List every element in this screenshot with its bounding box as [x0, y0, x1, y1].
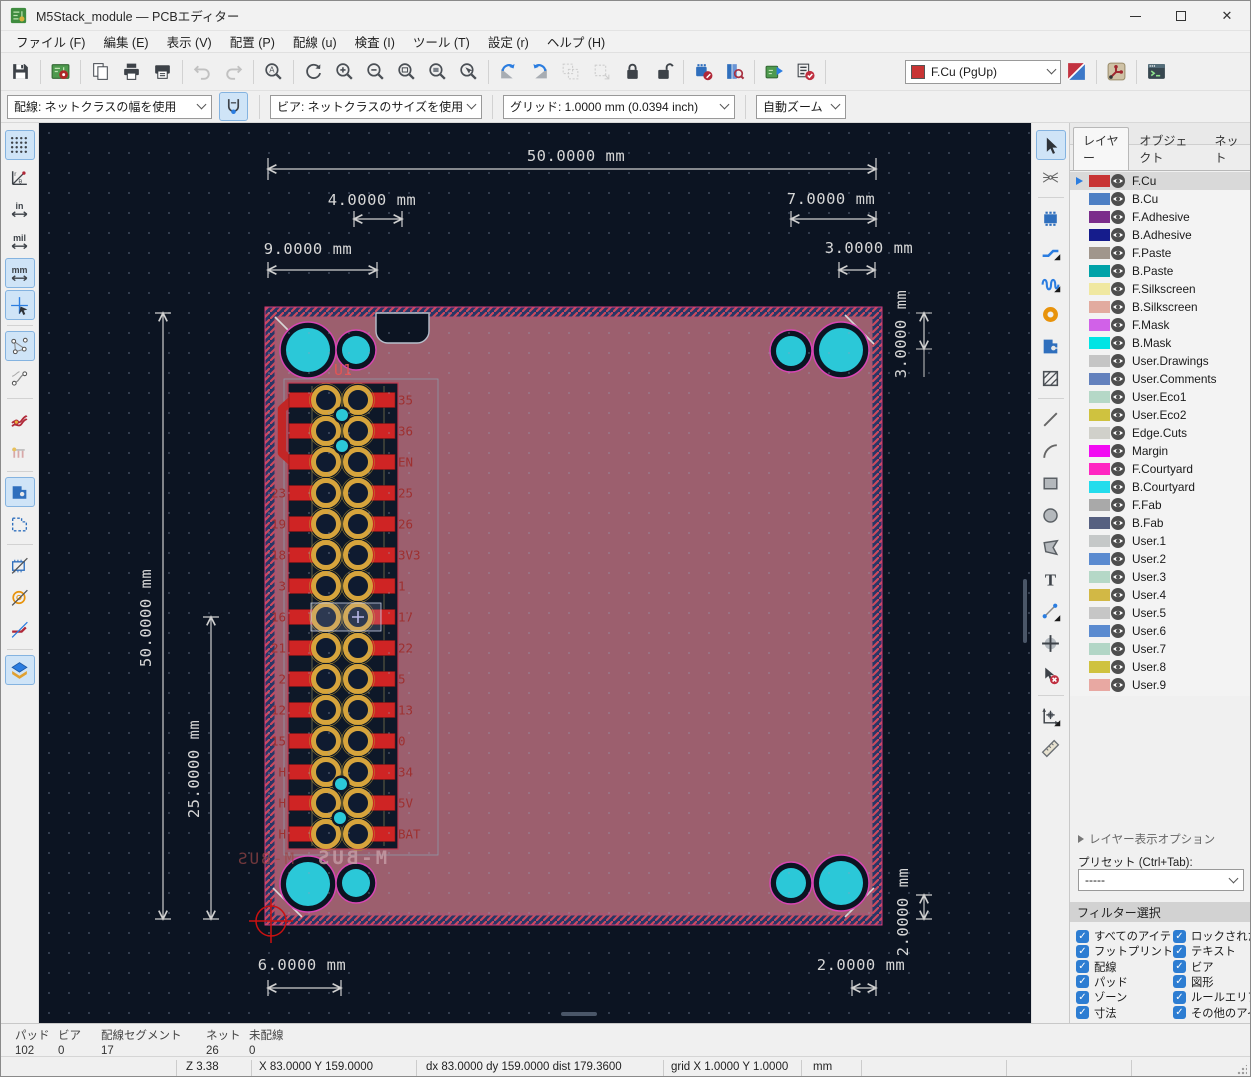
svg-text:θ: θ: [18, 178, 22, 185]
window-title: M5Stack_module — PCBエディター: [36, 6, 239, 25]
layer-row-f-adhesive[interactable]: F.Adhesive: [1070, 208, 1251, 226]
layer-color-swatch[interactable]: [1089, 337, 1110, 349]
router-settings-button[interactable]: [1102, 57, 1131, 86]
app-icon: [10, 7, 27, 24]
zone-fill-display-button[interactable]: [5, 477, 35, 507]
visibility-eye-icon[interactable]: [1110, 677, 1126, 693]
zoom-fit-button[interactable]: [392, 57, 421, 86]
place-via-button[interactable]: [1036, 299, 1066, 329]
params-toolbar: 配線: ネットクラスの幅を使用 ビア: ネットクラスのサイズを使用 グリッド: …: [1, 91, 1250, 123]
save-icon: [10, 61, 31, 82]
layer-row-f-fab[interactable]: F.Fab: [1070, 496, 1251, 514]
draw-zone-icon: [1040, 336, 1061, 357]
add-text-button[interactable]: T: [1036, 564, 1066, 594]
undo-button[interactable]: [188, 57, 217, 86]
status-units: mm: [813, 1061, 832, 1073]
units-mil-button[interactable]: mil: [5, 226, 35, 256]
separator: [182, 60, 183, 84]
layer-color-swatch[interactable]: [1089, 283, 1110, 295]
route-tracks-button[interactable]: [1036, 235, 1066, 265]
layer-row-f-courtyard[interactable]: F.Courtyard: [1070, 460, 1251, 478]
rotate-ccw-icon: [498, 61, 519, 82]
filter-item: ✓ビア: [1173, 960, 1251, 974]
svg-text:3.0000 mm: 3.0000 mm: [892, 290, 910, 379]
dimension-icon: [1040, 601, 1061, 622]
pcb-editor-window: M5Stack_module — PCBエディター ✕ ファイル (F)編集 (…: [0, 0, 1251, 1077]
rule-area-icon: [1040, 368, 1061, 389]
scripting-console-button[interactable]: [1142, 57, 1171, 86]
visibility-eye-icon[interactable]: [1110, 425, 1126, 441]
visibility-eye-icon[interactable]: [1110, 659, 1126, 675]
filter-checkbox[interactable]: ✓: [1076, 960, 1089, 973]
layer-color-swatch[interactable]: [1089, 679, 1110, 691]
update-pcb-from-schematic-icon: [764, 61, 785, 82]
group-items-button[interactable]: [556, 57, 585, 86]
count-1: ビア0: [58, 1027, 81, 1057]
visibility-eye-icon[interactable]: [1110, 173, 1126, 189]
layer-color-swatch[interactable]: [1089, 211, 1110, 223]
sketch-pads-button[interactable]: [5, 582, 35, 612]
status-position: X 83.0000 Y 159.0000: [259, 1061, 373, 1073]
lock-button[interactable]: [618, 57, 647, 86]
menu-item-1[interactable]: 編集 (E): [94, 30, 157, 53]
filter-label: ルールエリア: [1191, 990, 1251, 1004]
visibility-eye-icon[interactable]: [1110, 245, 1126, 261]
chevron-down-icon: [467, 100, 477, 110]
visibility-eye-icon[interactable]: [1110, 407, 1126, 423]
layer-row-b-courtyard[interactable]: B.Courtyard: [1070, 478, 1251, 496]
group-items-icon: [560, 61, 581, 82]
menubar: ファイル (F)編集 (E)表示 (V)配置 (P)配線 (u)検査 (I)ツー…: [1, 31, 1250, 53]
delete-tool-button[interactable]: [1036, 660, 1066, 690]
count-2: 配線セグメント17: [101, 1027, 182, 1057]
separator: [40, 60, 41, 84]
layer-row-user-9[interactable]: User.9: [1070, 676, 1251, 694]
sketch-tracks-button[interactable]: [5, 614, 35, 644]
filter-checkbox[interactable]: ✓: [1076, 1006, 1089, 1019]
tab-objects[interactable]: オブジェクト: [1129, 127, 1204, 170]
minimize-icon: [1130, 16, 1141, 17]
status-counts-bar: パッド102ビア0配線セグメント17ネット26未配線0: [1, 1023, 1250, 1056]
layer-row-f-mask[interactable]: F.Mask: [1070, 316, 1251, 334]
layer-name: B.Adhesive: [1132, 228, 1192, 242]
filter-checkbox[interactable]: ✓: [1173, 975, 1186, 988]
layer-color-swatch[interactable]: [1089, 229, 1110, 241]
layer-name: B.Silkscreen: [1132, 300, 1198, 314]
layer-row-f-silkscreen[interactable]: F.Silkscreen: [1070, 280, 1251, 298]
update-pcb-from-schematic-button[interactable]: [760, 57, 789, 86]
pcb-canvas[interactable]: U1 3536EN23251926183V3311617212225121315…: [39, 123, 1031, 1023]
filter-checkbox[interactable]: ✓: [1173, 945, 1186, 958]
crosshair-cursor-button[interactable]: [5, 290, 35, 320]
print-button[interactable]: [117, 57, 146, 86]
visibility-eye-icon[interactable]: [1110, 551, 1126, 567]
unlock-button[interactable]: [649, 57, 678, 86]
separator: [825, 60, 826, 84]
visibility-eye-icon[interactable]: [1110, 641, 1126, 657]
filter-checkbox[interactable]: ✓: [1076, 930, 1089, 943]
units-inch-icon: in: [9, 199, 30, 220]
layer-color-swatch[interactable]: [1089, 661, 1110, 673]
ungroup-items-button[interactable]: [587, 57, 616, 86]
filter-item: ✓ルールエリア: [1173, 990, 1251, 1004]
layer-row-edge-cuts[interactable]: Edge.Cuts: [1070, 424, 1251, 442]
menu-item-7[interactable]: 設定 (r): [479, 30, 538, 53]
layer-name: User.7: [1132, 642, 1166, 656]
footprint-browser-button[interactable]: [720, 57, 749, 86]
footprint-browser-icon: [724, 61, 745, 82]
zoom-fit-objects-icon: [427, 61, 448, 82]
filter-item: ✓その他のアイテム: [1173, 1006, 1251, 1020]
menu-item-8[interactable]: ヘルプ (H): [538, 30, 614, 53]
tab-layers[interactable]: レイヤー: [1073, 127, 1129, 170]
draw-circle-button[interactable]: [1036, 500, 1066, 530]
layer-color-swatch[interactable]: [1089, 481, 1110, 493]
filter-checkbox[interactable]: ✓: [1076, 991, 1089, 1004]
filter-item: ✓図形: [1173, 975, 1251, 989]
show-ratsnest-button[interactable]: [5, 331, 35, 361]
layer-row-user-4[interactable]: User.4: [1070, 586, 1251, 604]
visibility-eye-icon[interactable]: [1110, 533, 1126, 549]
find-button[interactable]: A: [259, 57, 288, 86]
menu-item-2[interactable]: 表示 (V): [158, 30, 221, 53]
place-via-icon: [1040, 304, 1061, 325]
net-names-display-button[interactable]: [5, 436, 35, 466]
layer-color-swatch[interactable]: [1089, 373, 1110, 385]
target-marker-icon: [1040, 633, 1061, 654]
separator: [259, 95, 260, 119]
filter-checkbox[interactable]: ✓: [1076, 975, 1089, 988]
layer-row-b-fab[interactable]: B.Fab: [1070, 514, 1251, 532]
filter-label: フットプリント: [1094, 944, 1171, 958]
layer-row-margin[interactable]: Margin: [1070, 442, 1251, 460]
visibility-eye-icon[interactable]: [1110, 605, 1126, 621]
layer-list: F.CuB.CuF.AdhesiveB.AdhesiveF.PasteB.Pas…: [1070, 172, 1251, 696]
redo-button[interactable]: [219, 57, 248, 86]
lock-icon: [622, 61, 643, 82]
zone-outline-display-button[interactable]: [5, 509, 35, 539]
vertical-scrollbar[interactable]: [1023, 579, 1027, 643]
layer-row-f-paste[interactable]: F.Paste: [1070, 244, 1251, 262]
layer-row-user-eco2[interactable]: User.Eco2: [1070, 406, 1251, 424]
grid-dots: [39, 123, 1031, 1023]
layer-name: F.Cu: [1132, 174, 1156, 188]
find-icon: A: [263, 61, 284, 82]
layer-row-b-paste[interactable]: B.Paste: [1070, 262, 1251, 280]
add-text-icon: T: [1040, 569, 1061, 590]
layer-color-swatch[interactable]: [1089, 445, 1110, 457]
tab-nets[interactable]: ネット: [1204, 127, 1251, 170]
layer-name: User.Comments: [1132, 372, 1217, 386]
visibility-eye-icon[interactable]: [1110, 371, 1126, 387]
main-toolbar: A F.Cu (PgUp): [1, 53, 1250, 91]
curved-ratsnest-button[interactable]: [5, 363, 35, 393]
menu-item-0[interactable]: ファイル (F): [7, 30, 94, 53]
sketch-pads-icon: [9, 587, 30, 608]
separator: [7, 544, 33, 545]
layer-row-user-5[interactable]: User.5: [1070, 604, 1251, 622]
visibility-eye-icon[interactable]: [1110, 281, 1126, 297]
track-width-toggle-button[interactable]: [219, 92, 248, 121]
draw-line-button[interactable]: [1036, 404, 1066, 434]
layer-color-swatch[interactable]: [1089, 409, 1110, 421]
layer-name: F.Paste: [1132, 246, 1171, 260]
layer-name: B.Mask: [1132, 336, 1171, 350]
svg-text:6.0000 mm: 6.0000 mm: [258, 956, 347, 974]
layer-name: Margin: [1132, 444, 1168, 458]
units-mm-button[interactable]: mm: [5, 258, 35, 288]
visibility-eye-icon[interactable]: [1110, 389, 1126, 405]
units-inch-button[interactable]: in: [5, 194, 35, 224]
layer-color-swatch[interactable]: [1089, 535, 1110, 547]
draw-circle-icon: [1040, 505, 1061, 526]
draw-zone-button[interactable]: [1036, 331, 1066, 361]
visibility-eye-icon[interactable]: [1110, 461, 1126, 477]
visibility-eye-icon[interactable]: [1110, 443, 1126, 459]
polar-coordinates-button[interactable]: rθ: [5, 162, 35, 192]
zoom-selection-button[interactable]: [454, 57, 483, 86]
plot-icon: [152, 61, 173, 82]
svg-text:9.0000 mm: 9.0000 mm: [264, 240, 353, 258]
right-toolbar: T: [1031, 123, 1069, 1023]
svg-text:A: A: [269, 66, 275, 75]
layer-name: F.Mask: [1132, 318, 1169, 332]
track-width-value: 配線: ネットクラスの幅を使用: [14, 98, 192, 115]
layer-row-user-comments[interactable]: User.Comments: [1070, 370, 1251, 388]
separator: [683, 60, 684, 84]
filter-label: すべてのアイテム: [1094, 929, 1171, 943]
visibility-eye-icon[interactable]: [1110, 299, 1126, 315]
count-0: パッド102: [15, 1027, 50, 1057]
appearance-tabs: レイヤーオブジェクトネット: [1070, 145, 1251, 171]
separator: [1136, 60, 1137, 84]
layer-row-user-6[interactable]: User.6: [1070, 622, 1251, 640]
layer-color-swatch[interactable]: [1089, 319, 1110, 331]
active-layer-select[interactable]: F.Cu (PgUp): [905, 60, 1061, 84]
layer-color-swatch[interactable]: [1089, 355, 1110, 367]
zoom-select[interactable]: 自動ズーム: [756, 95, 846, 119]
chevron-down-icon: [1229, 873, 1239, 883]
titlebar: M5Stack_module — PCBエディター ✕: [1, 1, 1250, 31]
filter-checkbox[interactable]: ✓: [1173, 960, 1186, 973]
track-width-select[interactable]: 配線: ネットクラスの幅を使用: [7, 95, 212, 119]
layer-pair-icon: [1066, 61, 1087, 82]
draw-polygon-button[interactable]: [1036, 532, 1066, 562]
chevron-down-icon: [197, 100, 207, 110]
menu-item-3[interactable]: 配置 (P): [221, 30, 284, 53]
layer-color-swatch[interactable]: [1089, 607, 1110, 619]
route-tracks-icon: [1040, 240, 1061, 261]
svg-text:7.0000 mm: 7.0000 mm: [787, 190, 876, 208]
layer-row-user-7[interactable]: User.7: [1070, 640, 1251, 658]
appearance-manager-icon: [9, 660, 30, 681]
zoom-fit-icon: [396, 61, 417, 82]
layer-color-swatch[interactable]: [1089, 391, 1110, 403]
layer-display-options-toggle[interactable]: レイヤー表示オプション: [1078, 831, 1215, 847]
grid-visibility-button[interactable]: [5, 130, 35, 160]
layer-name: User.6: [1132, 624, 1166, 638]
local-ratsnest-icon: [1040, 167, 1061, 188]
visibility-eye-icon[interactable]: [1110, 227, 1126, 243]
visibility-eye-icon[interactable]: [1110, 515, 1126, 531]
menu-item-6[interactable]: ツール (T): [404, 30, 479, 53]
place-footprint-button[interactable]: [1036, 203, 1066, 233]
design-rules-check-icon: [795, 61, 816, 82]
track-width-icon: [223, 96, 244, 117]
layer-color-swatch[interactable]: [1089, 193, 1110, 205]
grid-value: グリッド: 1.0000 mm (0.0394 inch): [510, 98, 715, 115]
select-tool-button[interactable]: [1036, 130, 1066, 160]
filter-item: ✓すべてのアイテム: [1076, 929, 1171, 943]
refresh-view-button[interactable]: [299, 57, 328, 86]
svg-text:3.0000 mm: 3.0000 mm: [825, 239, 914, 257]
appearance-panel: 外観 レイヤーオブジェクトネット F.CuB.CuF.AdhesiveB.Adh…: [1069, 123, 1251, 1023]
sketch-footprints-button[interactable]: [5, 550, 35, 580]
layer-row-user-8[interactable]: User.8: [1070, 658, 1251, 676]
local-ratsnest-button[interactable]: [1036, 162, 1066, 192]
visibility-eye-icon[interactable]: [1110, 497, 1126, 513]
measure-tool-button[interactable]: [1036, 733, 1066, 763]
layer-row-user-eco1[interactable]: User.Eco1: [1070, 388, 1251, 406]
horizontal-scrollbar[interactable]: [561, 1012, 597, 1016]
origin-tool-button[interactable]: [1036, 701, 1066, 731]
filter-checkbox[interactable]: ✓: [1173, 1006, 1186, 1019]
active-layer-value: F.Cu (PgUp): [931, 65, 1042, 79]
layer-name: User.9: [1132, 678, 1166, 692]
layer-color-swatch[interactable]: [1089, 517, 1110, 529]
preset-select[interactable]: -----: [1078, 869, 1244, 891]
footprint-editor-icon: [693, 61, 714, 82]
layer-row-b-mask[interactable]: B.Mask: [1070, 334, 1251, 352]
rotate-cw-button[interactable]: [525, 57, 554, 86]
canvas-area: U1 3536EN23251926183V3311617212225121315…: [39, 123, 1031, 1023]
appearance-manager-button[interactable]: [5, 655, 35, 685]
separator: [7, 398, 33, 399]
design-rules-check-button[interactable]: [791, 57, 820, 86]
layer-row-b-adhesive[interactable]: B.Adhesive: [1070, 226, 1251, 244]
filter-item: ✓寸法: [1076, 1006, 1171, 1020]
filter-checkbox[interactable]: ✓: [1076, 945, 1089, 958]
visibility-eye-icon[interactable]: [1110, 317, 1126, 333]
dimension-button[interactable]: [1036, 596, 1066, 626]
layer-row-user-3[interactable]: User.3: [1070, 568, 1251, 586]
via-size-select[interactable]: ビア: ネットクラスのサイズを使用: [270, 95, 482, 119]
svg-text:50.0000 mm: 50.0000 mm: [527, 147, 625, 165]
via-size-value: ビア: ネットクラスのサイズを使用: [277, 98, 462, 115]
layer-color-swatch[interactable]: [1089, 553, 1110, 565]
layer-color-swatch[interactable]: [1089, 175, 1110, 187]
visibility-eye-icon[interactable]: [1110, 587, 1126, 603]
page-settings-button[interactable]: [86, 57, 115, 86]
zone-outline-display-icon: [9, 514, 30, 535]
target-marker-button[interactable]: [1036, 628, 1066, 658]
separator: [293, 60, 294, 84]
layer-color-swatch[interactable]: [1089, 499, 1110, 511]
layer-color-swatch[interactable]: [1089, 571, 1110, 583]
page-settings-icon: [90, 61, 111, 82]
menu-item-5[interactable]: 検査 (I): [346, 30, 404, 53]
zoom-out-button[interactable]: [361, 57, 390, 86]
filter-label: 図形: [1191, 975, 1214, 989]
footprint-editor-button[interactable]: [689, 57, 718, 86]
plot-button[interactable]: [148, 57, 177, 86]
layer-name: User.1: [1132, 534, 1166, 548]
visibility-eye-icon[interactable]: [1110, 623, 1126, 639]
unlock-icon: [653, 61, 674, 82]
filter-title: フィルター選択: [1077, 904, 1161, 921]
origin-tool-icon: [1040, 706, 1061, 727]
save-button[interactable]: [6, 57, 35, 86]
grid-select[interactable]: グリッド: 1.0000 mm (0.0394 inch): [503, 95, 735, 119]
layer-row-user-drawings[interactable]: User.Drawings: [1070, 352, 1251, 370]
layer-row-f-cu[interactable]: F.Cu: [1070, 172, 1251, 190]
visibility-eye-icon[interactable]: [1110, 569, 1126, 585]
preset-label: プリセット (Ctrl+Tab):: [1078, 854, 1193, 870]
layer-color-swatch[interactable]: [1089, 301, 1110, 313]
rotate-ccw-button[interactable]: [494, 57, 523, 86]
layer-row-b-cu[interactable]: B.Cu: [1070, 190, 1251, 208]
layer-color-swatch[interactable]: [1089, 247, 1110, 259]
filter-label: ロックされたアイテム: [1191, 929, 1251, 943]
board-setup-button[interactable]: [46, 57, 75, 86]
visibility-eye-icon[interactable]: [1110, 263, 1126, 279]
layer-color-swatch[interactable]: [1089, 643, 1110, 655]
resize-grip[interactable]: [1237, 1065, 1247, 1075]
layer-color-swatch[interactable]: [1089, 589, 1110, 601]
visibility-eye-icon[interactable]: [1110, 335, 1126, 351]
draw-arc-button[interactable]: [1036, 436, 1066, 466]
rule-area-button[interactable]: [1036, 363, 1066, 393]
visibility-eye-icon[interactable]: [1110, 209, 1126, 225]
layer-color-swatch[interactable]: [1089, 625, 1110, 637]
layer-row-user-1[interactable]: User.1: [1070, 532, 1251, 550]
tune-length-button[interactable]: [1036, 267, 1066, 297]
track-clearance-display-button[interactable]: [5, 404, 35, 434]
zoom-fit-objects-button[interactable]: [423, 57, 452, 86]
layer-color-swatch[interactable]: [1089, 265, 1110, 277]
layer-color-swatch[interactable]: [1089, 463, 1110, 475]
filter-checkbox[interactable]: ✓: [1173, 930, 1186, 943]
separator: [1038, 695, 1064, 696]
visibility-eye-icon[interactable]: [1110, 191, 1126, 207]
status-delta: dx 83.0000 dy 159.0000 dist 179.3600: [426, 1061, 622, 1073]
filter-header: フィルター選択: [1070, 902, 1251, 922]
layer-row-b-silkscreen[interactable]: B.Silkscreen: [1070, 298, 1251, 316]
draw-polygon-icon: [1040, 537, 1061, 558]
layer-color-swatch[interactable]: [1089, 427, 1110, 439]
redo-icon: [223, 61, 244, 82]
filter-checkbox[interactable]: ✓: [1173, 991, 1186, 1004]
zoom-in-button[interactable]: [330, 57, 359, 86]
active-layer-swatch: [911, 65, 925, 79]
layer-name: User.4: [1132, 588, 1166, 602]
layer-name: User.3: [1132, 570, 1166, 584]
close-button[interactable]: ✕: [1204, 1, 1250, 31]
crosshair-cursor-icon: [9, 295, 30, 316]
layer-name: F.Courtyard: [1132, 462, 1193, 476]
menu-item-4[interactable]: 配線 (u): [284, 30, 346, 53]
draw-rectangle-button[interactable]: [1036, 468, 1066, 498]
visibility-eye-icon[interactable]: [1110, 353, 1126, 369]
layer-pair-button[interactable]: [1062, 57, 1091, 86]
separator: [488, 60, 489, 84]
rotate-cw-icon: [529, 61, 550, 82]
visibility-eye-icon[interactable]: [1110, 479, 1126, 495]
maximize-button[interactable]: [1158, 1, 1204, 31]
minimize-button[interactable]: [1112, 1, 1158, 31]
zoom-selection-icon: [458, 61, 479, 82]
layer-row-user-2[interactable]: User.2: [1070, 550, 1251, 568]
